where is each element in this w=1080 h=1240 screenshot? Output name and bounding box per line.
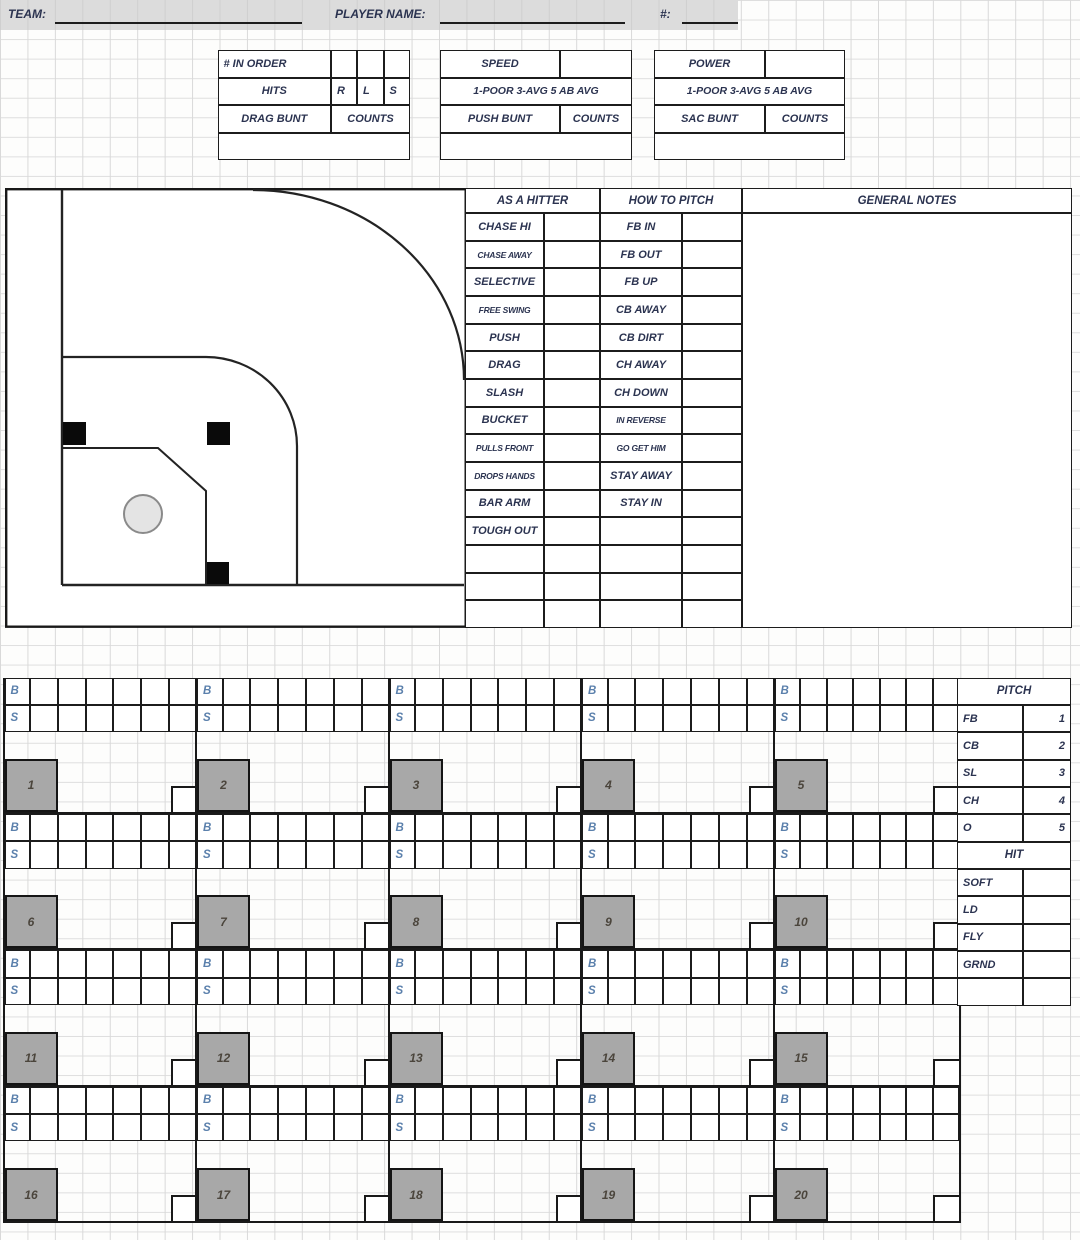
ball-pitch-cell[interactable] bbox=[223, 678, 251, 705]
ball-pitch-cell[interactable] bbox=[30, 1087, 58, 1114]
at-bat-number-box[interactable]: 6 bbox=[5, 895, 58, 948]
strike-pitch-cell[interactable] bbox=[471, 978, 499, 1005]
strike-pitch-cell[interactable] bbox=[223, 1114, 251, 1141]
power-value-cell[interactable] bbox=[765, 50, 845, 78]
strike-pitch-cell[interactable] bbox=[906, 1114, 933, 1141]
strike-pitch-cell[interactable] bbox=[526, 978, 554, 1005]
strike-pitch-cell[interactable] bbox=[554, 705, 582, 732]
pitch-approach-check-cell[interactable] bbox=[682, 296, 742, 324]
strike-pitch-cell[interactable] bbox=[113, 705, 141, 732]
at-bat-result-region[interactable]: 2 bbox=[197, 732, 390, 814]
strike-pitch-cell[interactable] bbox=[747, 1114, 775, 1141]
ball-pitch-cell[interactable] bbox=[141, 814, 169, 841]
result-notch-box[interactable] bbox=[749, 786, 775, 812]
ball-pitch-cell[interactable] bbox=[719, 1087, 747, 1114]
ball-pitch-cell[interactable] bbox=[719, 950, 747, 977]
ball-pitch-cell[interactable] bbox=[853, 678, 880, 705]
strike-pitch-cell[interactable] bbox=[278, 978, 306, 1005]
at-bat-number-box[interactable]: 7 bbox=[197, 895, 250, 948]
ball-pitch-cell[interactable] bbox=[827, 1087, 854, 1114]
strike-pitch-cell[interactable] bbox=[250, 1114, 278, 1141]
strike-pitch-cell[interactable] bbox=[498, 841, 526, 868]
at-bat-result-region[interactable]: 5 bbox=[775, 732, 960, 814]
strike-pitch-cell[interactable] bbox=[30, 841, 58, 868]
ball-pitch-cell[interactable] bbox=[800, 678, 827, 705]
hit-type-count-cell[interactable] bbox=[1023, 924, 1072, 951]
team-input-line[interactable] bbox=[55, 2, 302, 24]
ball-pitch-cell[interactable] bbox=[141, 1087, 169, 1114]
ball-pitch-cell[interactable] bbox=[334, 814, 362, 841]
ball-pitch-cell[interactable] bbox=[800, 950, 827, 977]
at-bat-result-region[interactable]: 20 bbox=[775, 1141, 960, 1223]
pitch-approach-check-cell[interactable] bbox=[682, 490, 742, 518]
strike-pitch-cell[interactable] bbox=[608, 841, 636, 868]
strike-pitch-cell[interactable] bbox=[362, 841, 390, 868]
strike-pitch-cell[interactable] bbox=[471, 705, 499, 732]
at-bat-number-box[interactable]: 16 bbox=[5, 1168, 58, 1221]
result-notch-box[interactable] bbox=[171, 922, 197, 948]
at-bat-number-box[interactable]: 8 bbox=[390, 895, 443, 948]
strike-pitch-cell[interactable] bbox=[691, 841, 719, 868]
ball-pitch-cell[interactable] bbox=[443, 678, 471, 705]
strike-pitch-cell[interactable] bbox=[880, 978, 907, 1005]
at-bat-result-region[interactable]: 14 bbox=[582, 1005, 775, 1087]
ball-pitch-cell[interactable] bbox=[906, 814, 933, 841]
result-notch-box[interactable] bbox=[933, 1195, 959, 1221]
strike-pitch-cell[interactable] bbox=[169, 841, 197, 868]
strike-pitch-cell[interactable] bbox=[554, 841, 582, 868]
ball-pitch-cell[interactable] bbox=[250, 1087, 278, 1114]
at-bat-result-region[interactable]: 3 bbox=[390, 732, 583, 814]
strike-pitch-cell[interactable] bbox=[526, 841, 554, 868]
strike-pitch-cell[interactable] bbox=[86, 705, 114, 732]
strike-pitch-cell[interactable] bbox=[278, 841, 306, 868]
ball-pitch-cell[interactable] bbox=[113, 814, 141, 841]
strike-pitch-cell[interactable] bbox=[800, 978, 827, 1005]
ball-pitch-cell[interactable] bbox=[635, 950, 663, 977]
hitter-trait-check-cell[interactable] bbox=[544, 213, 600, 241]
strike-pitch-cell[interactable] bbox=[443, 705, 471, 732]
strike-pitch-cell[interactable] bbox=[635, 705, 663, 732]
strike-pitch-cell[interactable] bbox=[250, 705, 278, 732]
ball-pitch-cell[interactable] bbox=[747, 678, 775, 705]
ball-pitch-cell[interactable] bbox=[250, 814, 278, 841]
strike-pitch-cell[interactable] bbox=[58, 1114, 86, 1141]
strike-pitch-cell[interactable] bbox=[608, 1114, 636, 1141]
strike-pitch-cell[interactable] bbox=[306, 705, 334, 732]
at-bat-result-region[interactable]: 1 bbox=[5, 732, 198, 814]
ball-pitch-cell[interactable] bbox=[691, 950, 719, 977]
pitch-approach-check-cell[interactable] bbox=[682, 407, 742, 435]
strike-pitch-cell[interactable] bbox=[906, 841, 933, 868]
ball-pitch-cell[interactable] bbox=[800, 814, 827, 841]
strike-pitch-cell[interactable] bbox=[554, 978, 582, 1005]
strike-pitch-cell[interactable] bbox=[306, 841, 334, 868]
strike-pitch-cell[interactable] bbox=[853, 1114, 880, 1141]
strike-pitch-cell[interactable] bbox=[608, 705, 636, 732]
hitter-trait-check-cell[interactable] bbox=[544, 517, 600, 545]
ball-pitch-cell[interactable] bbox=[362, 950, 390, 977]
ball-pitch-cell[interactable] bbox=[169, 678, 197, 705]
ball-pitch-cell[interactable] bbox=[443, 814, 471, 841]
strike-pitch-cell[interactable] bbox=[141, 1114, 169, 1141]
result-notch-box[interactable] bbox=[933, 922, 959, 948]
ball-pitch-cell[interactable] bbox=[334, 678, 362, 705]
pitch-approach-check-cell[interactable] bbox=[682, 213, 742, 241]
strike-pitch-cell[interactable] bbox=[334, 1114, 362, 1141]
ball-pitch-cell[interactable] bbox=[58, 950, 86, 977]
ball-pitch-cell[interactable] bbox=[554, 814, 582, 841]
strike-pitch-cell[interactable] bbox=[334, 978, 362, 1005]
ball-pitch-cell[interactable] bbox=[58, 814, 86, 841]
strike-pitch-cell[interactable] bbox=[169, 1114, 197, 1141]
ball-pitch-cell[interactable] bbox=[415, 678, 443, 705]
ball-pitch-cell[interactable] bbox=[471, 814, 499, 841]
pitch-approach-check-cell[interactable] bbox=[682, 600, 742, 628]
strike-pitch-cell[interactable] bbox=[880, 1114, 907, 1141]
strike-pitch-cell[interactable] bbox=[853, 978, 880, 1005]
ball-pitch-cell[interactable] bbox=[362, 678, 390, 705]
strike-pitch-cell[interactable] bbox=[443, 978, 471, 1005]
result-notch-box[interactable] bbox=[171, 1059, 197, 1085]
strike-pitch-cell[interactable] bbox=[663, 978, 691, 1005]
strike-pitch-cell[interactable] bbox=[933, 841, 960, 868]
strike-pitch-cell[interactable] bbox=[443, 841, 471, 868]
ball-pitch-cell[interactable] bbox=[608, 1087, 636, 1114]
strike-pitch-cell[interactable] bbox=[933, 705, 960, 732]
ball-pitch-cell[interactable] bbox=[554, 950, 582, 977]
ball-pitch-cell[interactable] bbox=[278, 678, 306, 705]
ball-pitch-cell[interactable] bbox=[747, 1087, 775, 1114]
ball-pitch-cell[interactable] bbox=[853, 950, 880, 977]
hitter-trait-check-cell[interactable] bbox=[544, 600, 600, 628]
at-bat-result-region[interactable]: 9 bbox=[582, 869, 775, 951]
pitch-approach-check-cell[interactable] bbox=[682, 324, 742, 352]
ball-pitch-cell[interactable] bbox=[223, 814, 251, 841]
strike-pitch-cell[interactable] bbox=[635, 1114, 663, 1141]
ball-pitch-cell[interactable] bbox=[880, 950, 907, 977]
strike-pitch-cell[interactable] bbox=[827, 978, 854, 1005]
result-notch-box[interactable] bbox=[556, 1059, 582, 1085]
pitch-approach-check-cell[interactable] bbox=[682, 351, 742, 379]
player-name-input-line[interactable] bbox=[440, 2, 625, 24]
pitch-approach-check-cell[interactable] bbox=[682, 434, 742, 462]
strike-pitch-cell[interactable] bbox=[58, 705, 86, 732]
strike-pitch-cell[interactable] bbox=[86, 978, 114, 1005]
ball-pitch-cell[interactable] bbox=[526, 814, 554, 841]
at-bat-number-box[interactable]: 2 bbox=[197, 759, 250, 812]
strike-pitch-cell[interactable] bbox=[526, 1114, 554, 1141]
strike-pitch-cell[interactable] bbox=[933, 1114, 960, 1141]
at-bat-number-box[interactable]: 4 bbox=[582, 759, 635, 812]
ball-pitch-cell[interactable] bbox=[635, 814, 663, 841]
ball-pitch-cell[interactable] bbox=[906, 950, 933, 977]
ball-pitch-cell[interactable] bbox=[30, 814, 58, 841]
ball-pitch-cell[interactable] bbox=[86, 1087, 114, 1114]
ball-pitch-cell[interactable] bbox=[691, 814, 719, 841]
ball-pitch-cell[interactable] bbox=[334, 1087, 362, 1114]
strike-pitch-cell[interactable] bbox=[747, 841, 775, 868]
at-bat-number-box[interactable]: 11 bbox=[5, 1032, 58, 1085]
ball-pitch-cell[interactable] bbox=[498, 1087, 526, 1114]
ball-pitch-cell[interactable] bbox=[933, 950, 960, 977]
strike-pitch-cell[interactable] bbox=[719, 705, 747, 732]
ball-pitch-cell[interactable] bbox=[250, 950, 278, 977]
at-bat-result-region[interactable]: 4 bbox=[582, 732, 775, 814]
strike-pitch-cell[interactable] bbox=[58, 978, 86, 1005]
result-notch-box[interactable] bbox=[749, 922, 775, 948]
strike-pitch-cell[interactable] bbox=[306, 1114, 334, 1141]
ball-pitch-cell[interactable] bbox=[443, 950, 471, 977]
result-notch-box[interactable] bbox=[556, 786, 582, 812]
strike-pitch-cell[interactable] bbox=[250, 841, 278, 868]
ball-pitch-cell[interactable] bbox=[471, 950, 499, 977]
strike-pitch-cell[interactable] bbox=[498, 705, 526, 732]
strike-pitch-cell[interactable] bbox=[880, 705, 907, 732]
ball-pitch-cell[interactable] bbox=[86, 950, 114, 977]
ball-pitch-cell[interactable] bbox=[498, 814, 526, 841]
strike-pitch-cell[interactable] bbox=[30, 1114, 58, 1141]
ball-pitch-cell[interactable] bbox=[278, 1087, 306, 1114]
ball-pitch-cell[interactable] bbox=[86, 678, 114, 705]
ball-pitch-cell[interactable] bbox=[691, 678, 719, 705]
pitch-approach-check-cell[interactable] bbox=[682, 379, 742, 407]
ball-pitch-cell[interactable] bbox=[827, 814, 854, 841]
pitch-approach-check-cell[interactable] bbox=[682, 462, 742, 490]
pitch-approach-check-cell[interactable] bbox=[682, 545, 742, 573]
strike-pitch-cell[interactable] bbox=[663, 1114, 691, 1141]
ball-pitch-cell[interactable] bbox=[471, 1087, 499, 1114]
ball-pitch-cell[interactable] bbox=[498, 950, 526, 977]
strike-pitch-cell[interactable] bbox=[141, 705, 169, 732]
strike-pitch-cell[interactable] bbox=[362, 1114, 390, 1141]
at-bat-number-box[interactable]: 5 bbox=[775, 759, 828, 812]
strike-pitch-cell[interactable] bbox=[86, 1114, 114, 1141]
strike-pitch-cell[interactable] bbox=[691, 705, 719, 732]
ball-pitch-cell[interactable] bbox=[933, 814, 960, 841]
ball-pitch-cell[interactable] bbox=[608, 814, 636, 841]
hitter-trait-check-cell[interactable] bbox=[544, 407, 600, 435]
ball-pitch-cell[interactable] bbox=[827, 678, 854, 705]
in-order-value-cell[interactable] bbox=[357, 50, 384, 78]
strike-pitch-cell[interactable] bbox=[906, 978, 933, 1005]
strike-pitch-cell[interactable] bbox=[471, 841, 499, 868]
ball-pitch-cell[interactable] bbox=[169, 950, 197, 977]
ball-pitch-cell[interactable] bbox=[719, 814, 747, 841]
ball-pitch-cell[interactable] bbox=[58, 1087, 86, 1114]
ball-pitch-cell[interactable] bbox=[663, 1087, 691, 1114]
strike-pitch-cell[interactable] bbox=[635, 978, 663, 1005]
result-notch-box[interactable] bbox=[749, 1059, 775, 1085]
ball-pitch-cell[interactable] bbox=[526, 950, 554, 977]
strike-pitch-cell[interactable] bbox=[223, 841, 251, 868]
strike-pitch-cell[interactable] bbox=[362, 978, 390, 1005]
ball-pitch-cell[interactable] bbox=[880, 1087, 907, 1114]
ball-pitch-cell[interactable] bbox=[306, 950, 334, 977]
hitter-trait-check-cell[interactable] bbox=[544, 324, 600, 352]
strike-pitch-cell[interactable] bbox=[498, 978, 526, 1005]
strike-pitch-cell[interactable] bbox=[278, 705, 306, 732]
ball-pitch-cell[interactable] bbox=[747, 950, 775, 977]
ball-pitch-cell[interactable] bbox=[853, 814, 880, 841]
ball-pitch-cell[interactable] bbox=[415, 950, 443, 977]
ball-pitch-cell[interactable] bbox=[86, 814, 114, 841]
strike-pitch-cell[interactable] bbox=[362, 705, 390, 732]
at-bat-result-region[interactable]: 18 bbox=[390, 1141, 583, 1223]
strike-pitch-cell[interactable] bbox=[800, 841, 827, 868]
ball-pitch-cell[interactable] bbox=[635, 678, 663, 705]
in-order-value-cell[interactable] bbox=[384, 50, 411, 78]
result-notch-box[interactable] bbox=[364, 1195, 390, 1221]
ball-pitch-cell[interactable] bbox=[906, 678, 933, 705]
ball-pitch-cell[interactable] bbox=[141, 678, 169, 705]
at-bat-result-region[interactable]: 7 bbox=[197, 869, 390, 951]
at-bat-result-region[interactable]: 19 bbox=[582, 1141, 775, 1223]
ball-pitch-cell[interactable] bbox=[663, 678, 691, 705]
strike-pitch-cell[interactable] bbox=[471, 1114, 499, 1141]
at-bat-result-region[interactable]: 11 bbox=[5, 1005, 198, 1087]
at-bat-result-region[interactable]: 16 bbox=[5, 1141, 198, 1223]
legend-empty-cell[interactable] bbox=[957, 978, 1023, 1005]
ball-pitch-cell[interactable] bbox=[278, 814, 306, 841]
strike-pitch-cell[interactable] bbox=[719, 1114, 747, 1141]
ball-pitch-cell[interactable] bbox=[113, 950, 141, 977]
strike-pitch-cell[interactable] bbox=[719, 978, 747, 1005]
ball-pitch-cell[interactable] bbox=[691, 1087, 719, 1114]
strike-pitch-cell[interactable] bbox=[827, 841, 854, 868]
result-notch-box[interactable] bbox=[364, 1059, 390, 1085]
strike-pitch-cell[interactable] bbox=[223, 978, 251, 1005]
ball-pitch-cell[interactable] bbox=[306, 814, 334, 841]
at-bat-number-box[interactable]: 9 bbox=[582, 895, 635, 948]
field-diagram[interactable] bbox=[5, 188, 467, 628]
at-bat-number-box[interactable]: 19 bbox=[582, 1168, 635, 1221]
strike-pitch-cell[interactable] bbox=[443, 1114, 471, 1141]
at-bat-number-box[interactable]: 15 bbox=[775, 1032, 828, 1085]
at-bat-result-region[interactable]: 6 bbox=[5, 869, 198, 951]
strike-pitch-cell[interactable] bbox=[853, 705, 880, 732]
strike-pitch-cell[interactable] bbox=[306, 978, 334, 1005]
strike-pitch-cell[interactable] bbox=[141, 978, 169, 1005]
strike-pitch-cell[interactable] bbox=[747, 978, 775, 1005]
hitter-trait-check-cell[interactable] bbox=[544, 434, 600, 462]
at-bat-result-region[interactable]: 8 bbox=[390, 869, 583, 951]
strike-pitch-cell[interactable] bbox=[141, 841, 169, 868]
ball-pitch-cell[interactable] bbox=[635, 1087, 663, 1114]
pitch-approach-check-cell[interactable] bbox=[682, 241, 742, 269]
ball-pitch-cell[interactable] bbox=[415, 814, 443, 841]
strike-pitch-cell[interactable] bbox=[827, 1114, 854, 1141]
at-bat-result-region[interactable]: 17 bbox=[197, 1141, 390, 1223]
result-notch-box[interactable] bbox=[364, 786, 390, 812]
ball-pitch-cell[interactable] bbox=[747, 814, 775, 841]
strike-pitch-cell[interactable] bbox=[415, 841, 443, 868]
strike-pitch-cell[interactable] bbox=[691, 978, 719, 1005]
ball-pitch-cell[interactable] bbox=[554, 678, 582, 705]
ball-pitch-cell[interactable] bbox=[334, 950, 362, 977]
result-notch-box[interactable] bbox=[556, 1195, 582, 1221]
strike-pitch-cell[interactable] bbox=[498, 1114, 526, 1141]
push-bunt-entry-cell[interactable] bbox=[440, 133, 632, 161]
strike-pitch-cell[interactable] bbox=[800, 705, 827, 732]
strike-pitch-cell[interactable] bbox=[635, 841, 663, 868]
strike-pitch-cell[interactable] bbox=[58, 841, 86, 868]
strike-pitch-cell[interactable] bbox=[415, 978, 443, 1005]
ball-pitch-cell[interactable] bbox=[250, 678, 278, 705]
ball-pitch-cell[interactable] bbox=[663, 814, 691, 841]
result-notch-box[interactable] bbox=[933, 786, 959, 812]
pitch-approach-check-cell[interactable] bbox=[682, 517, 742, 545]
strike-pitch-cell[interactable] bbox=[86, 841, 114, 868]
ball-pitch-cell[interactable] bbox=[880, 814, 907, 841]
strike-pitch-cell[interactable] bbox=[906, 705, 933, 732]
result-notch-box[interactable] bbox=[171, 786, 197, 812]
strike-pitch-cell[interactable] bbox=[250, 978, 278, 1005]
strike-pitch-cell[interactable] bbox=[334, 705, 362, 732]
at-bat-number-box[interactable]: 17 bbox=[197, 1168, 250, 1221]
legend-empty-cell[interactable] bbox=[1023, 978, 1072, 1005]
ball-pitch-cell[interactable] bbox=[30, 678, 58, 705]
ball-pitch-cell[interactable] bbox=[169, 1087, 197, 1114]
ball-pitch-cell[interactable] bbox=[906, 1087, 933, 1114]
at-bat-result-region[interactable]: 10 bbox=[775, 869, 960, 951]
ball-pitch-cell[interactable] bbox=[933, 1087, 960, 1114]
speed-value-cell[interactable] bbox=[560, 50, 632, 78]
ball-pitch-cell[interactable] bbox=[443, 1087, 471, 1114]
at-bat-number-box[interactable]: 20 bbox=[775, 1168, 828, 1221]
strike-pitch-cell[interactable] bbox=[169, 705, 197, 732]
strike-pitch-cell[interactable] bbox=[663, 841, 691, 868]
strike-pitch-cell[interactable] bbox=[747, 705, 775, 732]
ball-pitch-cell[interactable] bbox=[141, 950, 169, 977]
ball-pitch-cell[interactable] bbox=[362, 1087, 390, 1114]
result-notch-box[interactable] bbox=[749, 1195, 775, 1221]
ball-pitch-cell[interactable] bbox=[113, 678, 141, 705]
ball-pitch-cell[interactable] bbox=[415, 1087, 443, 1114]
ball-pitch-cell[interactable] bbox=[719, 678, 747, 705]
hitter-trait-check-cell[interactable] bbox=[544, 545, 600, 573]
ball-pitch-cell[interactable] bbox=[554, 1087, 582, 1114]
ball-pitch-cell[interactable] bbox=[933, 678, 960, 705]
ball-pitch-cell[interactable] bbox=[608, 678, 636, 705]
at-bat-result-region[interactable]: 15 bbox=[775, 1005, 960, 1087]
in-order-value-cell[interactable] bbox=[331, 50, 357, 78]
hitter-trait-check-cell[interactable] bbox=[544, 573, 600, 601]
ball-pitch-cell[interactable] bbox=[526, 1087, 554, 1114]
ball-pitch-cell[interactable] bbox=[278, 950, 306, 977]
strike-pitch-cell[interactable] bbox=[169, 978, 197, 1005]
ball-pitch-cell[interactable] bbox=[526, 678, 554, 705]
hit-type-count-cell[interactable] bbox=[1023, 951, 1072, 978]
strike-pitch-cell[interactable] bbox=[554, 1114, 582, 1141]
hitter-trait-check-cell[interactable] bbox=[544, 241, 600, 269]
hitter-trait-check-cell[interactable] bbox=[544, 296, 600, 324]
result-notch-box[interactable] bbox=[171, 1195, 197, 1221]
at-bat-number-box[interactable]: 12 bbox=[197, 1032, 250, 1085]
at-bat-number-box[interactable]: 18 bbox=[390, 1168, 443, 1221]
strike-pitch-cell[interactable] bbox=[853, 841, 880, 868]
ball-pitch-cell[interactable] bbox=[498, 678, 526, 705]
ball-pitch-cell[interactable] bbox=[853, 1087, 880, 1114]
hitter-trait-check-cell[interactable] bbox=[544, 379, 600, 407]
at-bat-number-box[interactable]: 14 bbox=[582, 1032, 635, 1085]
ball-pitch-cell[interactable] bbox=[223, 1087, 251, 1114]
hit-type-count-cell[interactable] bbox=[1023, 896, 1072, 923]
at-bat-number-box[interactable]: 13 bbox=[390, 1032, 443, 1085]
strike-pitch-cell[interactable] bbox=[113, 1114, 141, 1141]
strike-pitch-cell[interactable] bbox=[223, 705, 251, 732]
ball-pitch-cell[interactable] bbox=[306, 1087, 334, 1114]
